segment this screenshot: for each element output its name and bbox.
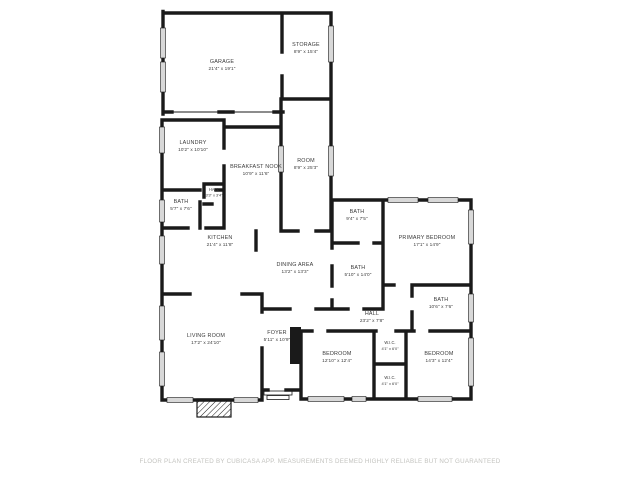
- window: [160, 127, 165, 153]
- room-label-wic-bottom: W.I.C. 4'1" x 6'0": [381, 375, 399, 386]
- window: [329, 26, 334, 62]
- room-label-storage: STORAGE 8'9" x 15'4": [292, 42, 320, 54]
- room-name: BEDROOM: [424, 351, 454, 357]
- room-dims: 14'3" x 12'4": [425, 358, 452, 363]
- room-label-hall: HALL 23'2" x 7'8": [360, 311, 385, 323]
- room-label-breakfast-nook: BREAKFAST NOOK 10'9" x 11'6": [230, 164, 282, 176]
- window: [161, 28, 166, 58]
- room-name: BATH: [350, 209, 365, 215]
- room-dims: 10'2" x 10'10": [178, 147, 208, 152]
- entry-steps: [264, 391, 292, 400]
- room-dims: 9'4" x 7'5": [346, 216, 368, 221]
- room-name: LAUNDRY: [179, 140, 206, 146]
- window: [388, 198, 418, 203]
- window: [160, 236, 165, 264]
- room-label-bedroom-left: BEDROOM 12'10" x 12'4": [322, 351, 352, 363]
- room-dims: 8'9" x 25'3": [294, 165, 319, 170]
- room-name: FOYER: [267, 330, 287, 336]
- room-dims: 10'6" x 7'6": [429, 304, 454, 309]
- window: [161, 62, 166, 92]
- room-label-foyer: FOYER 5'11" x 10'9": [264, 330, 291, 342]
- room-dims: 5'7" x 7'6": [170, 206, 192, 211]
- room-dims: 5'10" x 14'0": [344, 272, 371, 277]
- room-label-primary-bedroom: PRIMARY BEDROOM 17'1" x 14'9": [399, 235, 456, 247]
- room-name: W.I.C.: [384, 340, 395, 345]
- floor-plan-page: GARAGE 21'4" x 19'1" STORAGE 8'9" x 15'4…: [0, 0, 640, 480]
- room-name: ROOM: [297, 158, 315, 164]
- room-dims: 13'2" x 13'3": [281, 269, 308, 274]
- window: [428, 198, 458, 203]
- window: [469, 338, 474, 386]
- room-label-bedroom-right: BEDROOM 14'3" x 12'4": [424, 351, 454, 363]
- room-dims: 3'3" x 3'4": [205, 193, 223, 198]
- window: [469, 294, 474, 322]
- room-dims: 17'2" x 24'10": [191, 340, 221, 345]
- room-label-bath-right: BATH 10'6" x 7'6": [429, 297, 454, 309]
- room-name: KITCHEN: [207, 235, 232, 241]
- room-dims: 12'10" x 12'4": [322, 358, 352, 363]
- room-label-dining-area: DINING AREA 13'2" x 13'3": [277, 262, 314, 274]
- room-dims: 10'9" x 11'6": [243, 171, 270, 176]
- window: [234, 398, 258, 403]
- chimney-block: [290, 327, 301, 364]
- room-label-laundry: LAUNDRY 10'2" x 10'10": [178, 140, 208, 152]
- window: [160, 352, 165, 386]
- room-name: HALL: [209, 187, 220, 192]
- footer-text: FLOOR PLAN CREATED BY CUBICASA APP. MEAS…: [139, 458, 500, 465]
- fireplace: [197, 399, 231, 417]
- room-label-bath-top: BATH 9'4" x 7'5": [346, 209, 368, 221]
- room-dims: 23'2" x 7'8": [360, 318, 385, 323]
- room-dims: 17'1" x 14'9": [413, 242, 440, 247]
- window: [167, 398, 193, 403]
- room-dims: 4'1" x 6'0": [381, 381, 399, 386]
- room-name: LIVING ROOM: [187, 333, 225, 339]
- room-name: STORAGE: [292, 42, 320, 48]
- room-name: DINING AREA: [277, 262, 314, 268]
- room-label-garage: GARAGE 21'4" x 19'1": [208, 59, 235, 71]
- window: [160, 306, 165, 340]
- room-dims: 21'4" x 19'1": [208, 66, 235, 71]
- window: [329, 146, 334, 176]
- room-dims: 5'11" x 10'9": [264, 337, 291, 342]
- window: [160, 200, 165, 222]
- floor-plan-svg: GARAGE 21'4" x 19'1" STORAGE 8'9" x 15'4…: [0, 0, 640, 480]
- room-name: BATH: [174, 199, 189, 205]
- room-name: HALL: [365, 311, 379, 317]
- room-dims: 4'1" x 6'0": [381, 346, 399, 351]
- room-name: PRIMARY BEDROOM: [399, 235, 456, 241]
- room-label-bath-middle: BATH 5'10" x 14'0": [344, 265, 371, 277]
- room-dims: 21'4" x 11'8": [207, 242, 234, 247]
- room-label-room: ROOM 8'9" x 25'3": [294, 158, 319, 170]
- room-name: W.I.C.: [384, 375, 395, 380]
- window: [308, 397, 344, 402]
- window: [469, 210, 474, 244]
- room-label-bath-left: BATH 5'7" x 7'6": [170, 199, 192, 211]
- window: [418, 397, 452, 402]
- windows: [160, 26, 474, 403]
- room-label-wic-top: W.I.C. 4'1" x 6'0": [381, 340, 399, 351]
- room-name: BEDROOM: [322, 351, 352, 357]
- room-name: GARAGE: [210, 59, 234, 65]
- room-name: BATH: [351, 265, 366, 271]
- room-name: BATH: [434, 297, 449, 303]
- window: [352, 397, 366, 402]
- room-dims: 8'9" x 15'4": [294, 49, 319, 54]
- room-name: BREAKFAST NOOK: [230, 164, 282, 170]
- room-label-living-room: LIVING ROOM 17'2" x 24'10": [187, 333, 225, 345]
- room-label-kitchen: KITCHEN 21'4" x 11'8": [207, 235, 234, 247]
